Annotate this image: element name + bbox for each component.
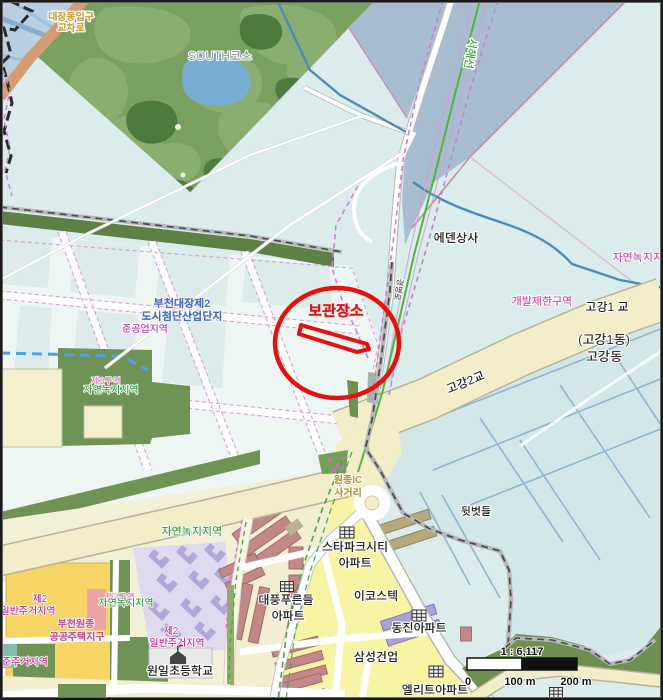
svg-text:일반주거지역: 일반주거지역 <box>149 634 204 649</box>
svg-text:이코스텍: 이코스텍 <box>354 587 398 604</box>
svg-text:뒷벗들: 뒷벗들 <box>461 503 491 519</box>
svg-text:고강1 교: 고강1 교 <box>585 298 628 315</box>
svg-text:준주거지역: 준주거지역 <box>2 653 48 668</box>
svg-text:보관장소: 보관장소 <box>308 300 363 321</box>
svg-text:0: 0 <box>465 676 471 688</box>
svg-text:아파트: 아파트 <box>271 607 304 624</box>
svg-text:에덴상사: 에덴상사 <box>434 229 478 246</box>
svg-text:아파트: 아파트 <box>338 554 371 571</box>
svg-text:SOUTH코스: SOUTH코스 <box>188 47 252 64</box>
svg-text:대풍푸른들: 대풍푸른들 <box>258 591 313 608</box>
svg-text:삼성건업: 삼성건업 <box>354 648 398 665</box>
svg-text:교차로: 교차로 <box>56 19 85 34</box>
svg-text:자연녹지지역: 자연녹지지역 <box>162 523 223 539</box>
svg-text:원일초등학교: 원일초등학교 <box>147 662 213 679</box>
svg-text:엘리트아파트: 엘리트아파트 <box>402 681 468 698</box>
svg-text:일반주거지역: 일반주거지역 <box>0 602 55 617</box>
svg-text:200 m: 200 m <box>560 676 591 688</box>
svg-text:자연녹지지역: 자연녹지지역 <box>83 381 138 396</box>
svg-text:준공업지역: 준공업지역 <box>122 320 168 335</box>
svg-text:개발제한구역: 개발제한구역 <box>512 293 573 309</box>
svg-text:1 : 6,117: 1 : 6,117 <box>501 646 544 658</box>
svg-text:스타파크시티: 스타파크시티 <box>322 538 388 555</box>
svg-text:동진아파트: 동진아파트 <box>391 619 446 636</box>
svg-text:자연녹지지역: 자연녹지지역 <box>98 594 153 609</box>
svg-text:자연녹지지역: 자연녹지지역 <box>613 249 663 265</box>
svg-text:100 m: 100 m <box>504 676 535 688</box>
svg-text:고강동: 고강동 <box>586 346 622 365</box>
svg-text:사거리: 사거리 <box>334 484 362 499</box>
svg-text:공공주택지구: 공공주택지구 <box>48 628 104 643</box>
